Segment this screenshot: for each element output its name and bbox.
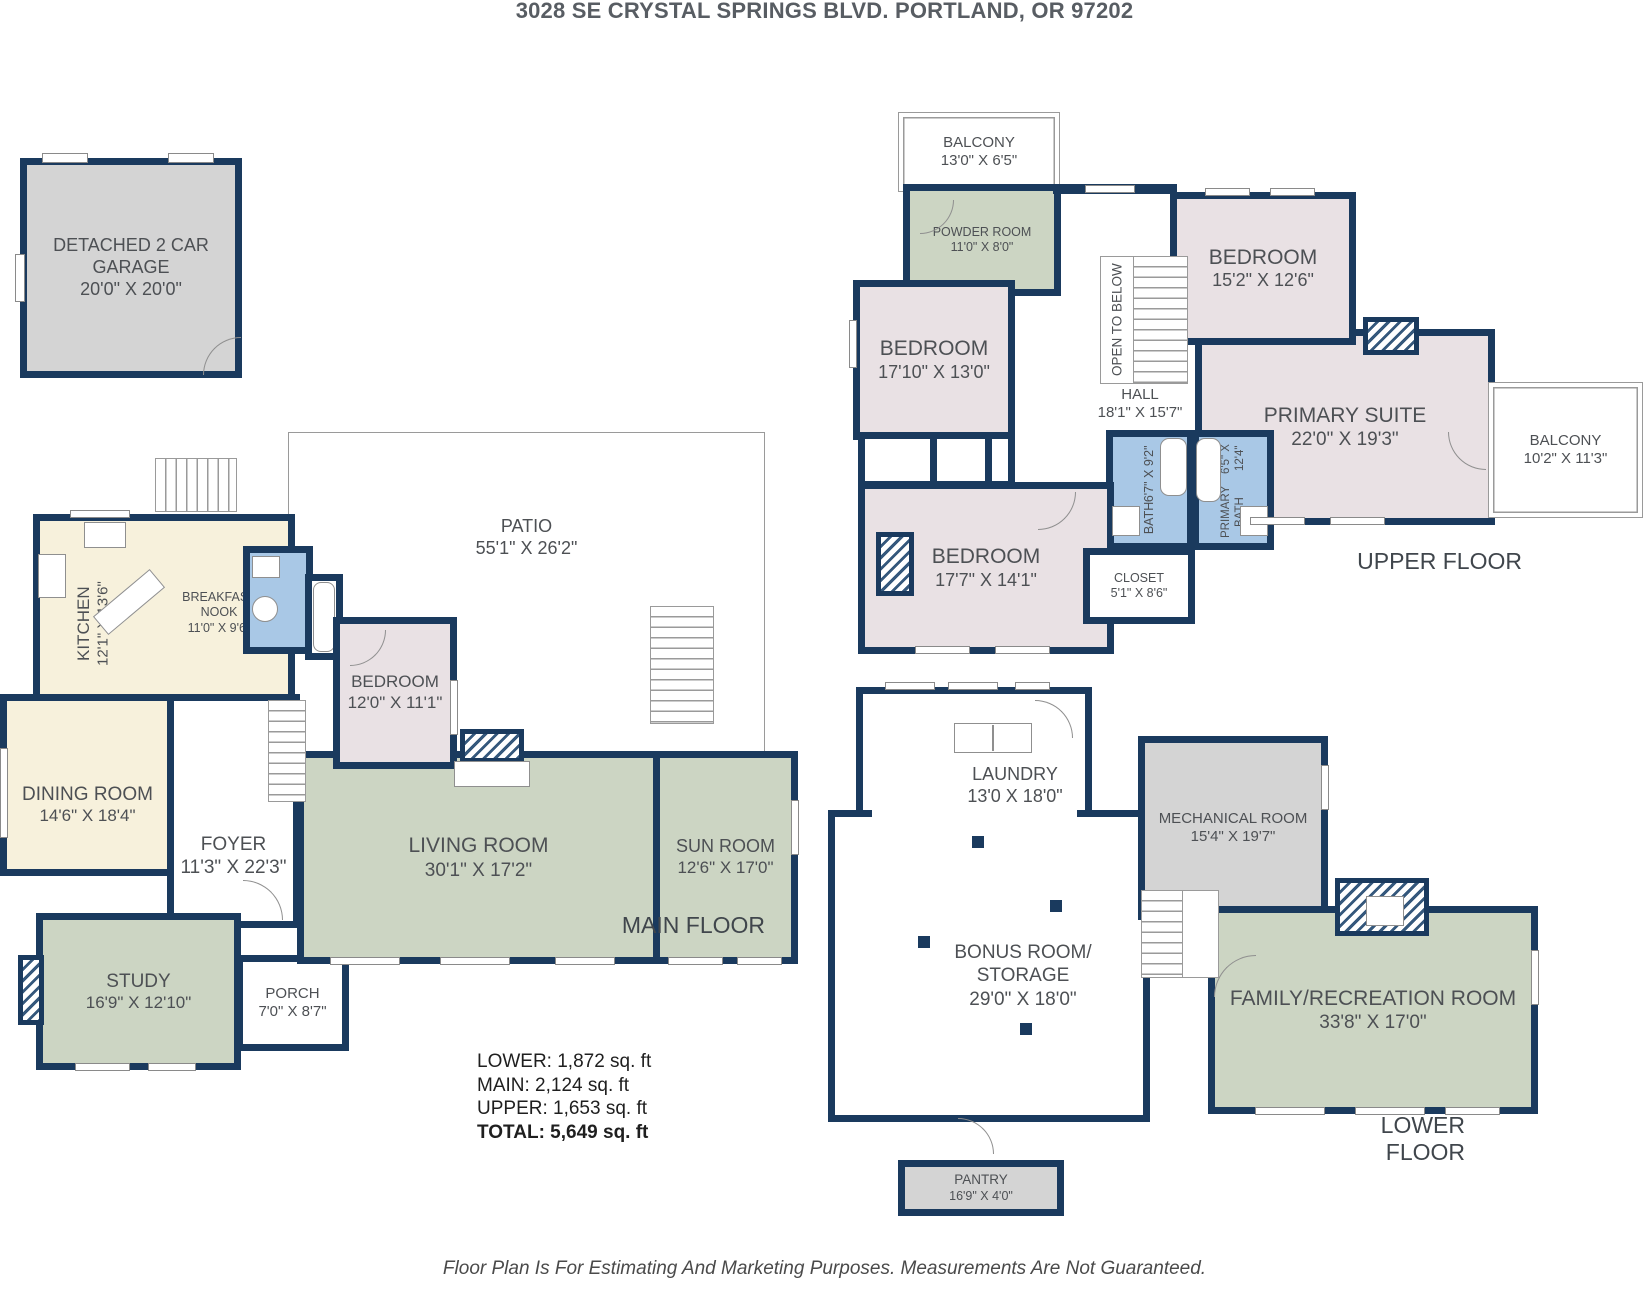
room-dims: 30'1" X 17'2"	[425, 859, 532, 882]
room-dims: 29'0" X 18'0"	[969, 988, 1076, 1011]
room-name: FOYER	[201, 833, 266, 856]
room-name: STUDY	[106, 970, 170, 993]
room-dims: 5'1" X 8'6"	[1111, 586, 1168, 601]
stairs-treads	[1133, 257, 1187, 383]
patio-stairs	[650, 606, 714, 724]
window	[668, 957, 723, 965]
support-post	[1050, 900, 1062, 912]
window	[42, 153, 88, 163]
room-dims: 17'10" X 13'0"	[878, 362, 990, 384]
fireplace-hearth	[454, 761, 530, 787]
room-name: SUN ROOM	[676, 836, 775, 858]
closet-divider	[930, 435, 937, 485]
sink-divider	[992, 725, 994, 751]
window	[1270, 188, 1315, 196]
room-dims: 22'0" X 19'3"	[1291, 428, 1398, 451]
bath-label: BATH 6'7" X 9'2"	[1142, 445, 1157, 534]
bathtub	[1160, 438, 1187, 496]
area-total: TOTAL: 5,649 sq. ft	[477, 1121, 717, 1145]
upper-balcony-right: BALCONY 10'2" X 11'3"	[1488, 382, 1643, 518]
window	[168, 153, 214, 163]
window	[737, 957, 782, 965]
main-floor-label: MAIN FLOOR	[600, 912, 765, 939]
bathtub	[1196, 438, 1221, 502]
room-dims: 16'9" X 12'10"	[86, 993, 192, 1014]
area-main: MAIN: 2,124 sq. ft	[477, 1074, 717, 1098]
window	[1330, 517, 1385, 525]
window	[995, 646, 1050, 654]
room-name: KITCHEN	[74, 587, 95, 662]
room-dims: 33'8" X 17'0"	[1319, 1011, 1426, 1034]
address-title: 3028 SE CRYSTAL SPRINGS BLVD. PORTLAND, …	[0, 0, 1649, 24]
room-name: CLOSET	[1114, 571, 1164, 586]
room-dims: 10'2" X 11'3"	[1524, 450, 1608, 468]
upper-bedroom-1: BEDROOM 17'10" X 13'0"	[853, 280, 1015, 440]
room-dims: 11'3" X 22'3"	[181, 856, 287, 879]
room-dims: 6'5" X 12'4"	[1219, 437, 1247, 480]
room-name: PRIMARY SUITE	[1264, 403, 1427, 429]
room-dims: 20'0" X 20'0"	[80, 279, 182, 301]
stairs-treads	[1142, 891, 1183, 977]
window	[791, 800, 799, 855]
room-name: BEDROOM	[880, 336, 989, 362]
room-dims: 11'0" X 9'6"	[188, 621, 251, 636]
window	[1250, 517, 1305, 525]
room-name: PATIO	[501, 516, 552, 538]
room-name: PORCH	[265, 985, 319, 1003]
room-name: BALCONY	[943, 134, 1015, 152]
window	[1085, 185, 1135, 193]
disclaimer-text: Floor Plan Is For Estimating And Marketi…	[0, 1258, 1649, 1280]
support-post	[972, 836, 984, 848]
patio-label: PATIO 55'1" X 26'2"	[289, 513, 764, 563]
room-name: BEDROOM	[1209, 245, 1318, 271]
room-name: BATH	[1142, 502, 1157, 534]
window	[885, 682, 935, 690]
foyer-stairs	[268, 700, 306, 802]
support-post	[918, 936, 930, 948]
room-name: HALL	[1121, 386, 1159, 404]
hall-label: HALL 18'1" X 15'7"	[1070, 380, 1210, 428]
lower-stairs	[1141, 890, 1219, 978]
window	[440, 957, 510, 965]
bonus-room-label: BONUS ROOM/ STORAGE 29'0" X 18'0"	[938, 934, 1108, 1018]
room-name: LAUNDRY	[972, 764, 1058, 786]
sink-vanity	[1112, 506, 1140, 536]
upper-closet: CLOSET 5'1" X 8'6"	[1083, 548, 1195, 624]
family-recreation-room: FAMILY/RECREATION ROOM 33'8" X 17'0"	[1208, 906, 1538, 1114]
garage-room: DETACHED 2 CAR GARAGE 20'0" X 20'0"	[20, 158, 242, 378]
window	[1205, 188, 1250, 196]
room-dims: 15'4" X 19'7"	[1191, 828, 1276, 846]
area-lower: LOWER: 1,872 sq. ft	[477, 1050, 717, 1074]
room-dims: 15'2" X 12'6"	[1212, 270, 1314, 292]
room-name: BALCONY	[1530, 432, 1602, 450]
room-dims: 17'7" X 14'1"	[935, 570, 1037, 592]
room-dims: 16'9" X 4'0"	[949, 1189, 1013, 1204]
pantry-room: PANTRY 16'9" X 4'0"	[898, 1160, 1064, 1216]
room-dims: 14'6" X 18'4"	[39, 806, 135, 827]
room-dims: 13'0" X 6'5"	[941, 152, 1017, 170]
window	[1015, 682, 1050, 690]
study-room: STUDY 16'9" X 12'10"	[36, 913, 241, 1070]
door-arc	[958, 1118, 994, 1154]
fireplace	[1363, 317, 1419, 355]
window	[1531, 950, 1539, 1005]
room-dims: 12'0" X 11'1"	[348, 693, 443, 714]
window	[330, 957, 400, 965]
area-summary: LOWER: 1,872 sq. ft MAIN: 2,124 sq. ft U…	[477, 1050, 717, 1144]
room-name: FAMILY/RECREATION ROOM	[1230, 986, 1516, 1012]
fireplace	[460, 729, 524, 763]
dining-room: DINING ROOM 14'6" X 18'4"	[0, 694, 175, 876]
upper-balcony-top: BALCONY 13'0" X 6'5"	[898, 112, 1060, 192]
area-upper: UPPER: 1,653 sq. ft	[477, 1097, 717, 1121]
closet-divider	[985, 435, 992, 485]
window	[148, 1063, 196, 1071]
window	[70, 510, 130, 518]
support-post	[1020, 1023, 1032, 1035]
window	[555, 957, 615, 965]
bath-sink	[252, 596, 278, 622]
room-dims: 7'0" X 8'7"	[258, 1003, 326, 1021]
stove	[38, 554, 66, 598]
bathtub	[313, 582, 335, 652]
porch-room: PORCH 7'0" X 8'7"	[236, 955, 349, 1051]
room-name: DINING ROOM	[22, 783, 153, 806]
window	[1321, 765, 1329, 810]
open-passage	[872, 803, 1077, 825]
window	[15, 254, 25, 302]
room-name: BEDROOM	[932, 544, 1041, 570]
open-to-below-label: OPEN TO BELOW	[1101, 257, 1133, 383]
room-name: DETACHED 2 CAR GARAGE	[41, 235, 221, 279]
lower-floor-label: LOWER FLOOR	[1300, 1112, 1465, 1166]
window	[450, 680, 458, 735]
toilet	[252, 556, 280, 578]
room-dims: 12'6" X 17'0"	[677, 858, 773, 879]
room-dims: 18'1" X 15'7"	[1098, 404, 1183, 422]
upper-floor-label: UPPER FLOOR	[1330, 548, 1522, 575]
room-name: BONUS ROOM/ STORAGE	[948, 941, 1098, 987]
stairwell-open-to-below: OPEN TO BELOW	[1100, 256, 1188, 384]
window	[948, 682, 998, 690]
window	[849, 320, 857, 368]
room-name: PANTRY	[954, 1172, 1008, 1188]
room-name: OPEN TO BELOW	[1110, 264, 1125, 377]
kitchen-sink	[84, 522, 126, 548]
window	[0, 748, 8, 838]
room-dims: 55'1" X 26'2"	[476, 538, 578, 560]
room-dims: 6'7" X 9'2"	[1142, 445, 1157, 502]
floor-plan-page: 3028 SE CRYSTAL SPRINGS BLVD. PORTLAND, …	[0, 0, 1649, 1291]
room-name: MECHANICAL ROOM	[1159, 810, 1308, 828]
upper-bedroom-2: BEDROOM 15'2" X 12'6"	[1170, 192, 1356, 345]
room-name: LIVING ROOM	[408, 833, 548, 859]
exterior-stairs	[155, 458, 237, 512]
window	[75, 1063, 130, 1071]
fireplace	[18, 955, 44, 1025]
room-name: BEDROOM	[351, 672, 439, 693]
fireplace-firebox	[1366, 896, 1404, 926]
room-name: POWDER ROOM	[933, 225, 1032, 240]
window	[915, 646, 970, 654]
room-dims: 11'0" X 8'0"	[951, 240, 1014, 255]
fireplace	[876, 532, 914, 596]
